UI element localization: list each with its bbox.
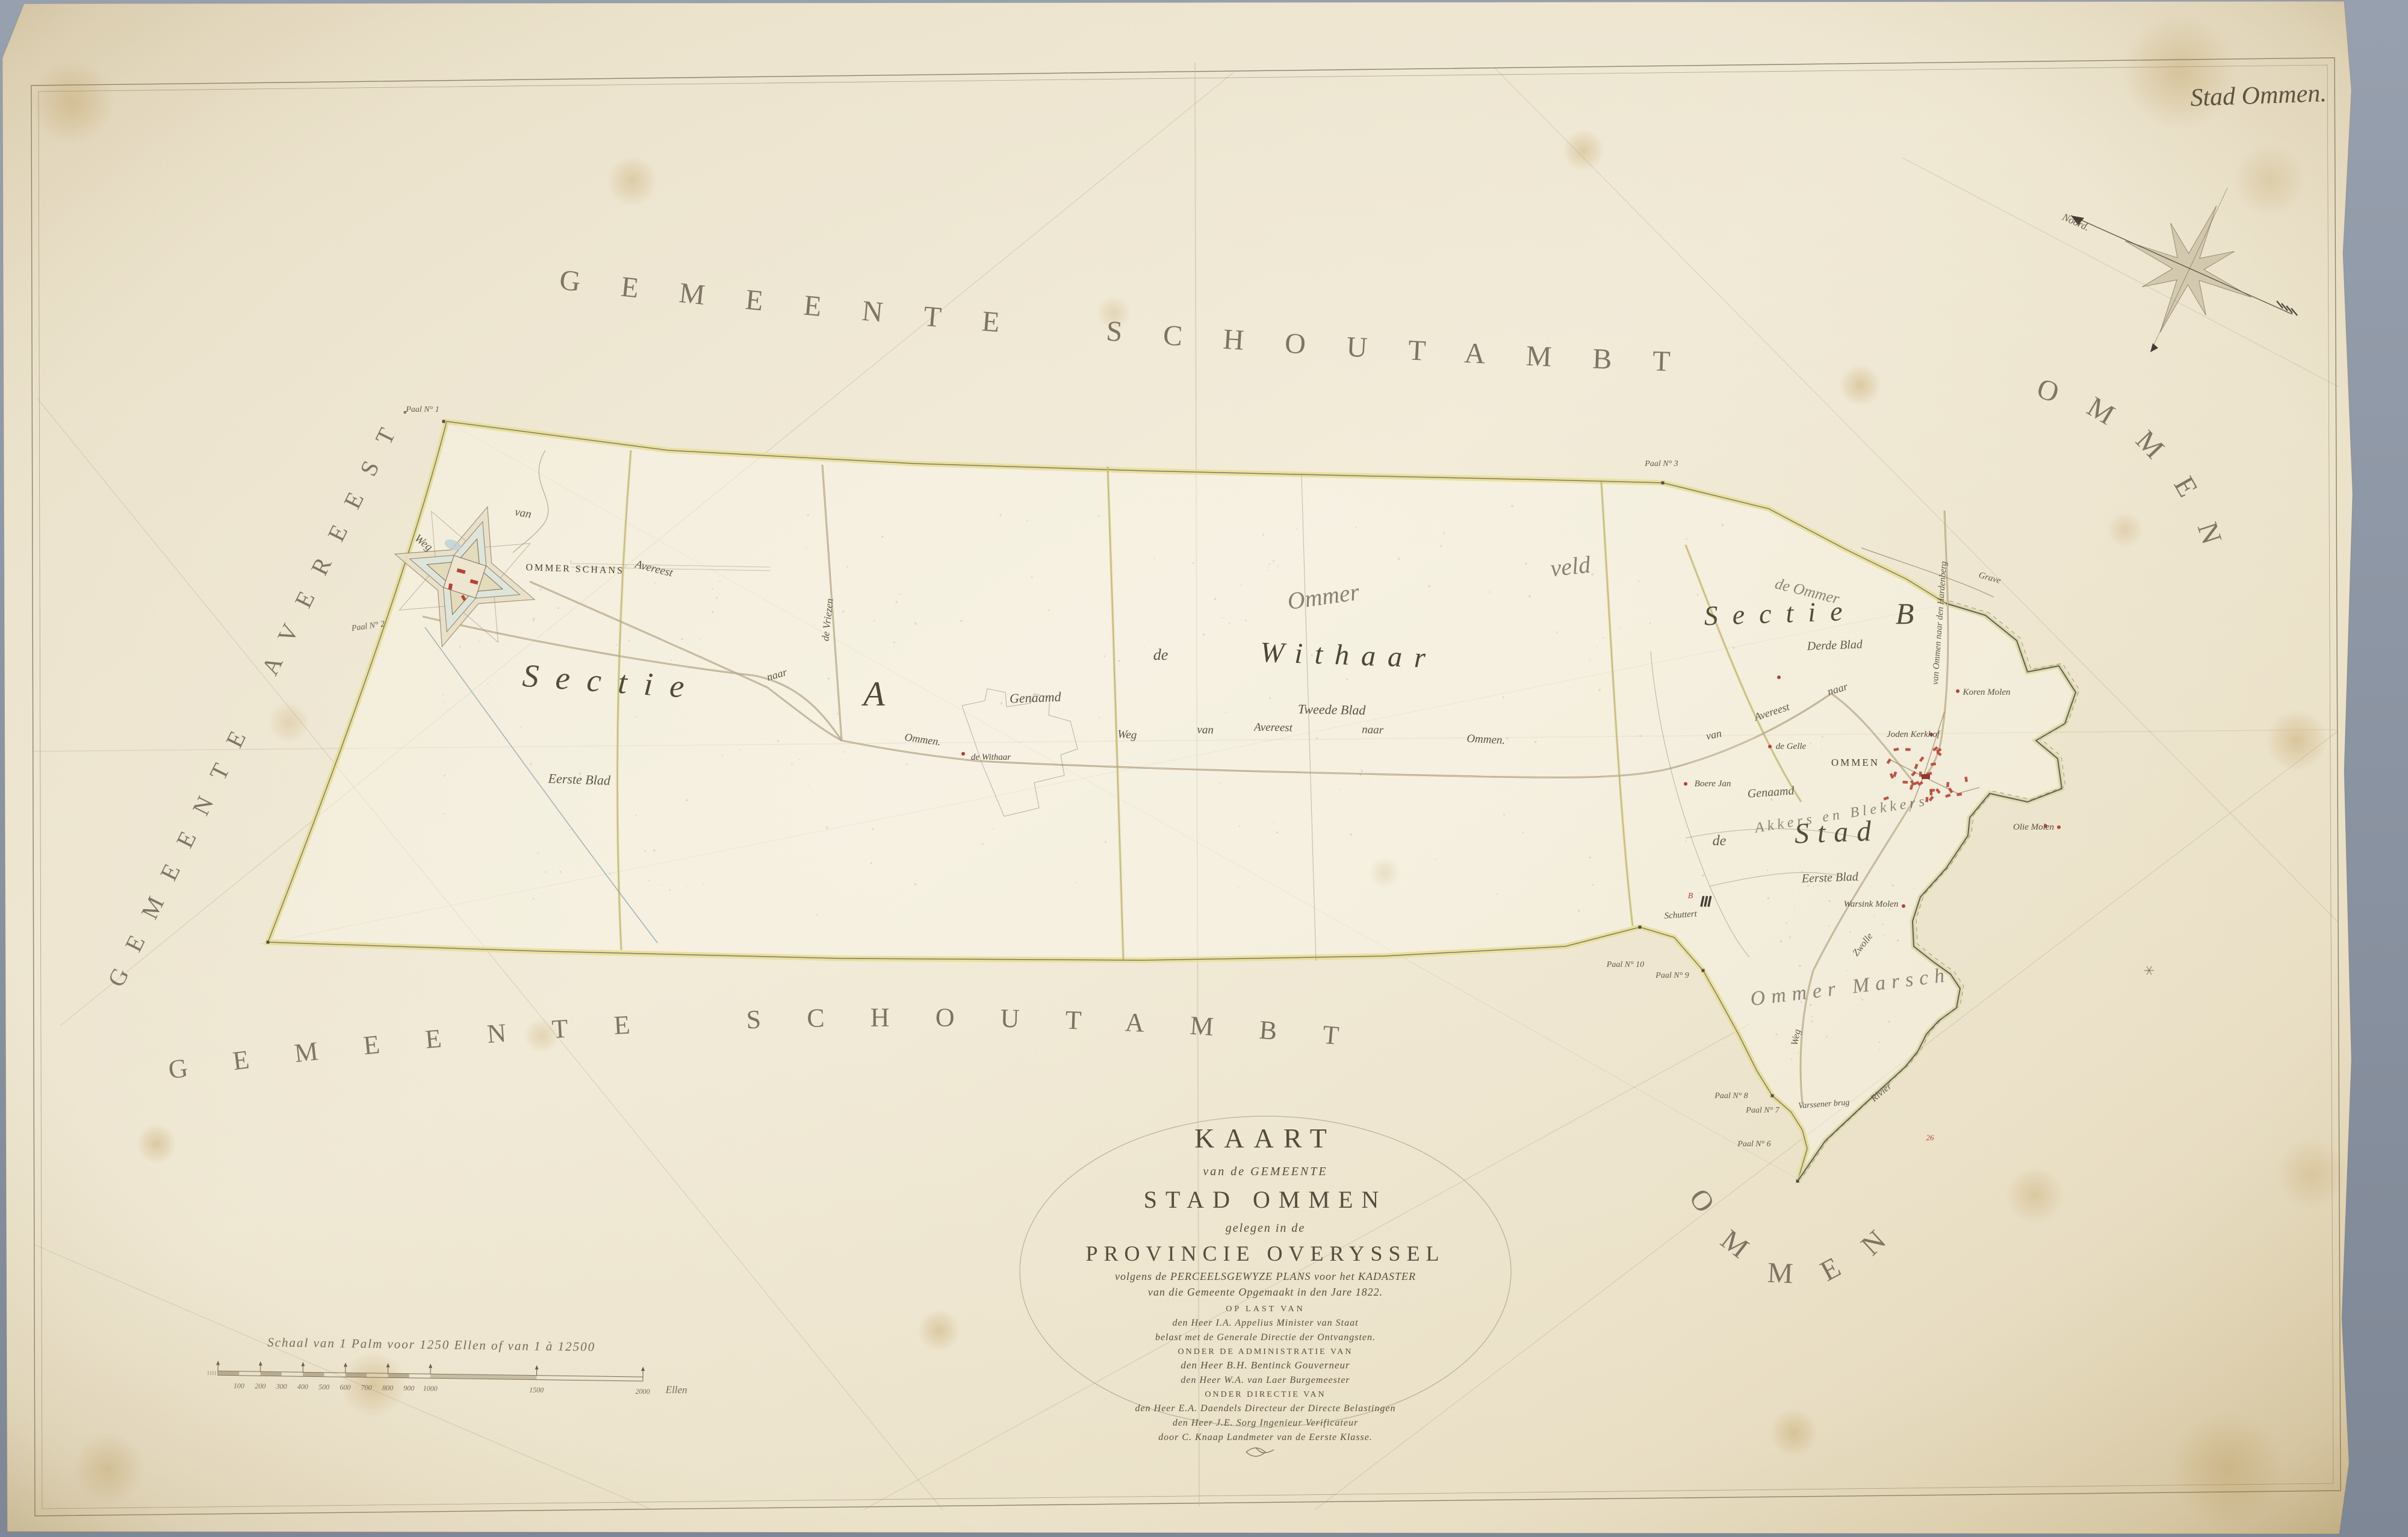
heath-speckle — [837, 713, 839, 715]
heath-speckle — [545, 871, 547, 873]
paper-stain — [607, 155, 657, 206]
boundary-post — [1639, 926, 1642, 929]
heath-speckle — [669, 889, 671, 891]
heath-speckle — [816, 914, 818, 916]
heath-speckle — [1112, 668, 1114, 669]
paper-stain — [1562, 129, 1604, 172]
heath-speckle — [1193, 562, 1194, 564]
heath-speckle — [777, 740, 779, 742]
heath-speckle — [1368, 781, 1369, 783]
cartouche-line-4: PROVINCIE OVERYSSEL — [1085, 1241, 1445, 1265]
heath-speckle — [1528, 595, 1531, 598]
heath-speckle — [1340, 789, 1341, 790]
heath-speckle — [739, 749, 740, 750]
heath-speckle — [533, 618, 535, 619]
map-label: de — [1153, 646, 1168, 663]
heath-speckle — [479, 641, 480, 642]
heath-speckle — [1346, 678, 1348, 680]
heath-speckle — [1098, 515, 1100, 517]
heath-speckle — [1031, 577, 1033, 579]
heath-speckle — [1316, 737, 1318, 739]
heath-speckle — [625, 565, 627, 567]
heath-speckle — [459, 646, 461, 648]
scale-tick-label: 400 — [297, 1382, 308, 1391]
heath-speckle — [703, 884, 704, 886]
label-derde-blad: Derde Blad — [1806, 638, 1863, 653]
paper-stain — [2122, 15, 2236, 129]
heath-speckle — [701, 656, 703, 657]
heath-speckle — [530, 763, 532, 765]
heath-speckle — [1350, 834, 1351, 836]
heath-speckle — [982, 843, 984, 845]
heath-speckle — [1276, 831, 1279, 834]
heath-speckle — [557, 607, 559, 609]
boundary-post — [1796, 1180, 1799, 1183]
heath-speckle — [699, 639, 700, 640]
boundary-post — [1771, 1095, 1774, 1098]
map-label: de — [1713, 833, 1727, 849]
scale-tick-label: 500 — [318, 1383, 329, 1391]
label-ommen-town: OMMEN — [1831, 757, 1879, 768]
heath-speckle — [1503, 697, 1504, 698]
heath-speckle — [1444, 532, 1445, 534]
farm-dot — [1684, 782, 1687, 786]
heath-speckle — [1828, 900, 1830, 902]
heath-speckle — [1262, 534, 1264, 536]
heath-speckle — [671, 660, 672, 661]
heath-speckle — [1398, 557, 1400, 559]
heath-speckle — [1001, 703, 1003, 705]
heath-speckle — [1245, 619, 1247, 621]
heath-speckle — [1813, 886, 1814, 887]
heath-speckle — [1103, 655, 1105, 657]
heath-speckle — [560, 871, 562, 872]
heath-speckle — [635, 815, 636, 816]
paper-stain — [2170, 1412, 2285, 1526]
heath-speckle — [1240, 583, 1241, 585]
heath-speckle — [1359, 774, 1362, 776]
boundary-post — [442, 420, 445, 423]
heath-speckle — [1203, 634, 1205, 636]
map-label: Paal N° 6 — [1737, 1140, 1770, 1149]
heath-speckle — [1597, 647, 1598, 648]
heath-speckle — [815, 624, 816, 626]
heath-speckle — [1879, 1049, 1880, 1050]
heath-speckle — [1792, 854, 1793, 855]
heath-speckle — [1361, 770, 1363, 772]
heath-speckle — [628, 640, 630, 642]
heath-speckle — [722, 754, 723, 756]
heath-speckle — [1144, 663, 1145, 665]
heath-speckle — [533, 898, 535, 899]
farm-dot — [1768, 745, 1772, 748]
heath-speckle — [1221, 617, 1223, 618]
heath-speckle — [1799, 965, 1801, 967]
heath-speckle — [716, 597, 718, 598]
cartouche-line-13: ONDER DIRECTIE VAN — [1205, 1390, 1326, 1399]
heath-speckle — [653, 849, 656, 852]
heath-speckle — [1791, 1058, 1792, 1060]
heath-speckle — [442, 694, 444, 695]
heath-speckle — [1810, 743, 1811, 744]
heath-speckle — [1435, 859, 1436, 860]
heath-speckle — [870, 862, 872, 864]
heath-speckle — [1496, 893, 1497, 895]
heath-speckle — [1697, 594, 1699, 596]
map-label: Weg — [1117, 728, 1137, 742]
heath-speckle — [687, 886, 688, 887]
heath-speckle — [914, 883, 917, 886]
heath-speckle — [1026, 520, 1028, 521]
heath-speckle — [1913, 894, 1914, 895]
heath-speckle — [1811, 1016, 1813, 1017]
cartouche-line-0: KAART — [1194, 1123, 1336, 1154]
paper-stain — [2107, 512, 2143, 548]
map-label: 26 — [1926, 1133, 1935, 1142]
heath-speckle — [1599, 689, 1601, 691]
scale-tick-label: 700 — [361, 1383, 372, 1392]
heath-speckle — [444, 775, 445, 777]
corner-annotation: Stad Ommen. — [2190, 79, 2327, 112]
heath-speckle — [1639, 735, 1641, 737]
heath-speckle — [661, 884, 662, 886]
map-label: Ommen. — [1466, 732, 1506, 747]
heath-speckle — [893, 642, 895, 644]
heath-speckle — [1503, 813, 1505, 815]
heath-speckle — [1698, 892, 1699, 893]
heath-speckle — [1578, 910, 1580, 911]
label-sectie-b: Sectie — [1704, 595, 1857, 632]
map-label: Paal N° 1 — [405, 405, 439, 414]
heath-speckle — [1522, 831, 1524, 833]
heath-speckle — [538, 852, 539, 854]
cartouche-line-6: van die Gemeente Opgemaakt in den Jare 1… — [1148, 1286, 1383, 1298]
label-sectie-b-letter: B — [1896, 597, 1914, 630]
cartouche-line-5: volgens de PERCEELSGEWYZE PLANS voor het… — [1115, 1270, 1416, 1282]
cartouche-line-14: den Heer E.A. Daendels Directeur der Dir… — [1135, 1403, 1396, 1414]
heath-speckle — [1273, 822, 1274, 823]
map-label: van — [1197, 724, 1214, 737]
heath-speckle — [1847, 970, 1848, 971]
heath-speckle — [1699, 766, 1701, 767]
heath-speckle — [691, 771, 692, 772]
map-label: Paal N° 8 — [1714, 1091, 1748, 1101]
label-withaar: Withaar — [1259, 636, 1438, 674]
map-label: Paal N° 7 — [1745, 1106, 1780, 1115]
map-label: Paal N° 10 — [1606, 960, 1644, 969]
label-eerste-blad-a: Eerste Blad — [547, 771, 611, 788]
paper-stain — [30, 60, 114, 144]
map-label: Boere Jan — [1695, 779, 1731, 789]
heath-speckle — [899, 594, 901, 595]
heath-speckle — [569, 829, 570, 830]
heath-speckle — [872, 828, 874, 830]
heath-speckle — [1534, 741, 1537, 744]
heath-speckle — [487, 683, 488, 685]
map-label: Warsink Molen — [1844, 899, 1899, 909]
farm-dot — [961, 752, 965, 756]
cartouche-line-7: OP LAST VAN — [1226, 1305, 1305, 1314]
map-label: Olie Molen — [2013, 822, 2054, 832]
scale-tick-label: 800 — [382, 1383, 393, 1392]
map-label: de Withaar — [971, 753, 1011, 762]
heath-speckle — [874, 620, 875, 622]
paper-stain — [2276, 1138, 2348, 1210]
heath-speckle — [709, 734, 710, 736]
paper-stain — [2006, 1166, 2064, 1224]
paper-stain — [918, 1309, 960, 1352]
farm-dot — [1956, 689, 1960, 693]
heath-speckle — [1589, 660, 1590, 661]
heath-speckle — [681, 638, 683, 640]
boundary-post — [1702, 969, 1705, 972]
cartouche-line-15: den Heer J.E. Sorg Ingenieur Verificateu… — [1173, 1418, 1358, 1428]
map-artwork: KAARTvan de GEMEENTESTAD OMMENgelegen in… — [2, 1, 2353, 1534]
farm-dot — [1902, 904, 1905, 908]
heath-speckle — [1821, 750, 1822, 751]
heath-speckle — [1786, 922, 1787, 924]
cartouche-line-1: van de GEMEENTE — [1203, 1165, 1327, 1178]
heath-speckle — [1214, 598, 1216, 600]
heath-speckle — [1879, 1042, 1881, 1043]
heath-speckle — [809, 722, 810, 723]
heath-speckle — [1882, 924, 1884, 925]
scale-tick-label: 1000 — [423, 1384, 438, 1393]
cartouche-line-9: belast met de Generale Directie der Ontv… — [1155, 1332, 1376, 1343]
paper-stain — [72, 1433, 144, 1505]
heath-speckle — [1556, 632, 1558, 633]
heath-speckle — [1220, 782, 1221, 783]
heath-speckle — [1795, 905, 1796, 907]
heath-speckle — [1638, 580, 1640, 582]
heath-speckle — [1775, 1034, 1777, 1036]
heath-speckle — [1267, 567, 1268, 568]
heath-speckle — [648, 880, 650, 881]
heath-speckle — [686, 800, 688, 802]
heath-speckle — [1777, 982, 1778, 983]
heath-speckle — [1268, 563, 1270, 565]
heath-speckle — [791, 763, 793, 765]
cartouche-line-16: door C. Knaap Landmeter van de Eerste Kl… — [1158, 1432, 1373, 1442]
heath-speckle — [807, 514, 809, 516]
heath-speckle — [1893, 1012, 1894, 1013]
heath-speckle — [960, 620, 962, 622]
heath-speckle — [1269, 697, 1271, 699]
heath-speckle — [1685, 840, 1686, 842]
heath-speckle — [808, 784, 809, 785]
label-tweede-blad: Tweede Blad — [1298, 701, 1367, 718]
map-label: B — [1688, 892, 1693, 901]
heath-speckle — [914, 623, 917, 625]
cartouche-line-2: STAD OMMEN — [1144, 1186, 1388, 1213]
map-label: Paal N° 9 — [1655, 971, 1689, 980]
scale-tick-label: 600 — [340, 1383, 350, 1391]
heath-speckle — [1603, 637, 1604, 638]
heath-speckle — [1440, 545, 1442, 547]
heath-speckle — [1525, 562, 1527, 564]
heath-speckle — [1789, 936, 1791, 938]
heath-speckle — [1225, 712, 1226, 713]
heath-speckle — [654, 582, 656, 583]
heath-speckle — [1105, 841, 1106, 843]
heath-speckle — [1915, 933, 1917, 934]
heath-speckle — [1144, 647, 1145, 648]
heath-speckle — [1511, 505, 1513, 508]
cartouche-line-8: den Heer I.A. Appelius Minister van Staa… — [1172, 1318, 1358, 1328]
heath-speckle — [1428, 585, 1430, 588]
heath-speckle — [1474, 871, 1476, 872]
heath-speckle — [843, 751, 844, 753]
scale-tick-label: 200 — [255, 1382, 265, 1390]
heath-speckle — [905, 763, 907, 765]
map-label: Joden Kerkhof — [1887, 730, 1941, 739]
heath-speckle — [1826, 1036, 1828, 1037]
heath-speckle — [444, 703, 445, 704]
heath-speckle — [1267, 570, 1268, 571]
heath-speckle — [533, 619, 535, 621]
heath-speckle — [730, 757, 731, 759]
heath-speckle — [1883, 934, 1884, 936]
heath-speckle — [1849, 931, 1851, 933]
heath-speckle — [1891, 884, 1894, 887]
heath-speckle — [881, 536, 884, 538]
heath-speckle — [1733, 647, 1734, 649]
heath-speckle — [1488, 591, 1489, 592]
heath-speckle — [1592, 884, 1593, 886]
cartouche-line-3: gelegen in de — [1226, 1222, 1306, 1235]
heath-speckle — [1229, 623, 1230, 624]
heath-speckle — [805, 547, 807, 548]
heath-speckle — [520, 726, 521, 727]
heath-speckle — [1591, 573, 1593, 576]
heath-speckle — [1405, 742, 1406, 743]
heath-speckle — [1619, 627, 1620, 629]
heath-speckle — [1506, 737, 1509, 740]
heath-speckle — [1099, 717, 1100, 718]
scale-tick-label: 900 — [403, 1384, 414, 1393]
paper-stain — [137, 1124, 176, 1164]
heath-speckle — [1888, 1020, 1890, 1022]
heath-speckle — [1286, 911, 1287, 913]
map-label: veld — [1549, 551, 1592, 582]
scale-tick-label: 300 — [275, 1382, 287, 1391]
heath-speckle — [1913, 887, 1914, 889]
heath-speckle — [1822, 736, 1823, 737]
label-sectie-a-letter: A — [861, 674, 885, 713]
heath-speckle — [1277, 566, 1278, 567]
scale-tick-label: 1500 — [529, 1386, 544, 1394]
heath-speckle — [1721, 524, 1724, 526]
heath-speckle — [1119, 660, 1121, 662]
heath-speckle — [616, 644, 617, 645]
heath-speckle — [635, 716, 636, 717]
map-label: Genaamd — [1010, 689, 1062, 706]
heath-speckle — [539, 589, 541, 591]
heath-speckle — [1076, 882, 1077, 883]
cartouche-line-12: den Heer W.A. van Laer Burgemeester — [1181, 1375, 1350, 1385]
heath-speckle — [1273, 560, 1274, 562]
scale-tick-label: 100 — [234, 1382, 244, 1390]
cartouche-line-10: ONDER DE ADMINISTRATIE VAN — [1178, 1347, 1353, 1356]
heath-speckle — [1589, 857, 1591, 859]
heath-speckle — [1048, 609, 1050, 611]
heath-speckle — [1861, 999, 1863, 1001]
heath-speckle — [1733, 818, 1734, 819]
map-label: Paal N° 3 — [1644, 459, 1678, 468]
heath-speckle — [1296, 529, 1297, 530]
paper-stain — [1770, 1409, 1818, 1457]
heath-speckle — [1798, 1053, 1799, 1054]
paper-stain — [1839, 364, 1881, 406]
heath-speckle — [799, 759, 800, 760]
heath-speckle — [826, 827, 828, 829]
heath-speckle — [828, 678, 830, 680]
farm-dot — [2057, 825, 2061, 829]
heath-speckle — [842, 610, 844, 612]
scale-tick-label: 2000 — [636, 1387, 650, 1396]
heath-speckle — [712, 588, 713, 589]
scale-unit-label: Ellen — [665, 1384, 687, 1396]
heath-speckle — [1702, 874, 1705, 877]
heath-speckle — [846, 566, 848, 568]
farm-dot — [1777, 675, 1781, 679]
heath-speckle — [1649, 623, 1651, 624]
label-eerste-blad-stad: Eerste Blad — [1801, 870, 1859, 885]
heath-speckle — [1780, 940, 1783, 943]
heath-speckle — [1773, 742, 1774, 744]
heath-speckle — [1873, 916, 1875, 917]
map-label: de Gelle — [1776, 742, 1807, 751]
heath-speckle — [712, 611, 714, 613]
heath-speckle — [1767, 897, 1769, 899]
heath-speckle — [1153, 558, 1155, 559]
heath-speckle — [719, 580, 721, 582]
paper-stain — [2233, 144, 2306, 217]
heath-speckle — [1676, 798, 1677, 799]
heath-speckle — [644, 850, 646, 852]
heath-speckle — [992, 828, 993, 830]
heath-speckle — [569, 560, 572, 563]
heath-speckle — [1355, 527, 1356, 528]
heath-speckle — [1238, 887, 1239, 888]
map-label: naar — [1362, 723, 1384, 736]
heath-speckle — [444, 813, 445, 815]
heath-speckle — [895, 601, 898, 603]
heath-speckle — [1810, 1004, 1812, 1007]
boundary-post — [267, 941, 270, 944]
heath-speckle — [999, 514, 1001, 516]
scanned-map-page: KAARTvan de GEMEENTESTAD OMMENgelegen in… — [0, 0, 2408, 1537]
heath-speckle — [609, 873, 611, 875]
map-label: Koren Molen — [1962, 688, 2010, 697]
heath-speckle — [1811, 1020, 1813, 1022]
boundary-post — [1662, 482, 1665, 485]
heath-speckle — [1239, 825, 1240, 827]
heath-speckle — [1058, 710, 1060, 711]
heath-speckle — [1897, 939, 1899, 942]
heath-speckle — [1686, 538, 1687, 540]
heath-speckle — [1828, 925, 1829, 927]
heath-speckle — [1767, 870, 1768, 871]
cartouche-line-11: den Heer B.H. Bentinck Gouverneur — [1181, 1359, 1350, 1371]
map-canvas: KAARTvan de GEMEENTESTAD OMMENgelegen in… — [0, 0, 2408, 1537]
map-label: Avereest — [1253, 721, 1293, 734]
